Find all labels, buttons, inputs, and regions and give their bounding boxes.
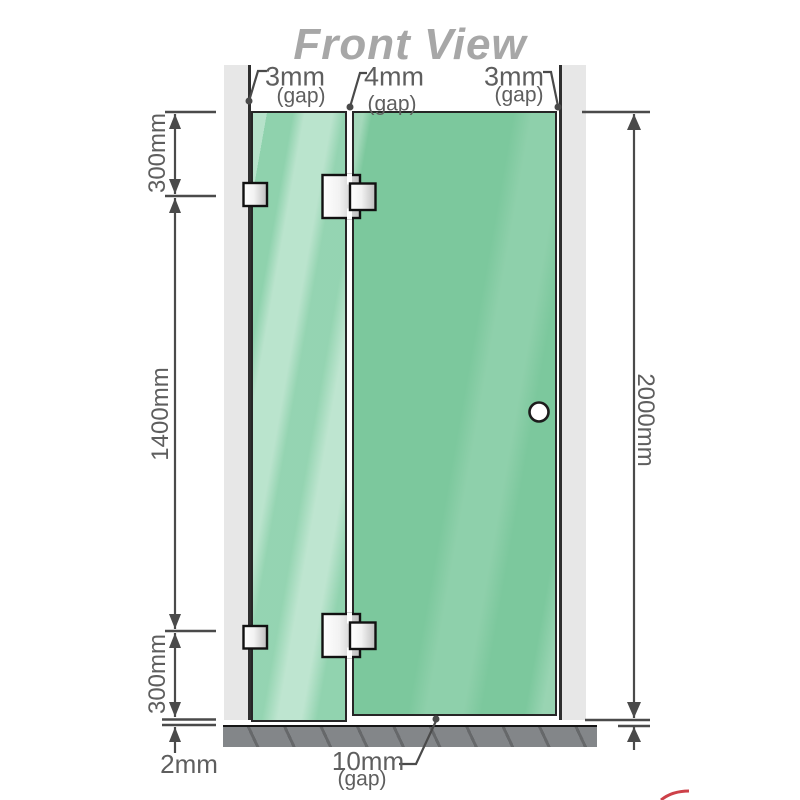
top-door-hinge	[323, 174, 376, 219]
door-handle	[530, 403, 549, 422]
gap-right-unit: (gap)	[494, 85, 543, 106]
red-swoosh-mark	[661, 791, 689, 800]
bottom-door-hinge	[323, 613, 376, 658]
bottom-wall-bracket	[244, 626, 268, 649]
gap-leader-dots	[246, 98, 562, 723]
dim-1400mm: 1400mm	[149, 367, 173, 460]
gap-middle-value: 4mm	[364, 64, 424, 91]
dim-300mm-top: 300mm	[146, 113, 170, 193]
dimension-lines-layer	[0, 0, 800, 800]
dim-2000mm: 2000mm	[633, 373, 657, 466]
gap-left-unit: (gap)	[276, 86, 325, 107]
front-view-diagram: Front View	[0, 0, 800, 800]
dimension-lines	[175, 114, 634, 753]
dim-300mm-bottom: 300mm	[146, 634, 170, 714]
gap-middle-unit: (gap)	[367, 94, 416, 115]
dim-2mm: 2mm	[160, 751, 218, 777]
dimension-arrows	[169, 114, 641, 742]
top-wall-bracket	[244, 183, 268, 206]
gap-leader-lines	[249, 71, 558, 764]
dimension-ticks	[162, 112, 650, 726]
gap-bottom-unit: (gap)	[337, 769, 386, 790]
